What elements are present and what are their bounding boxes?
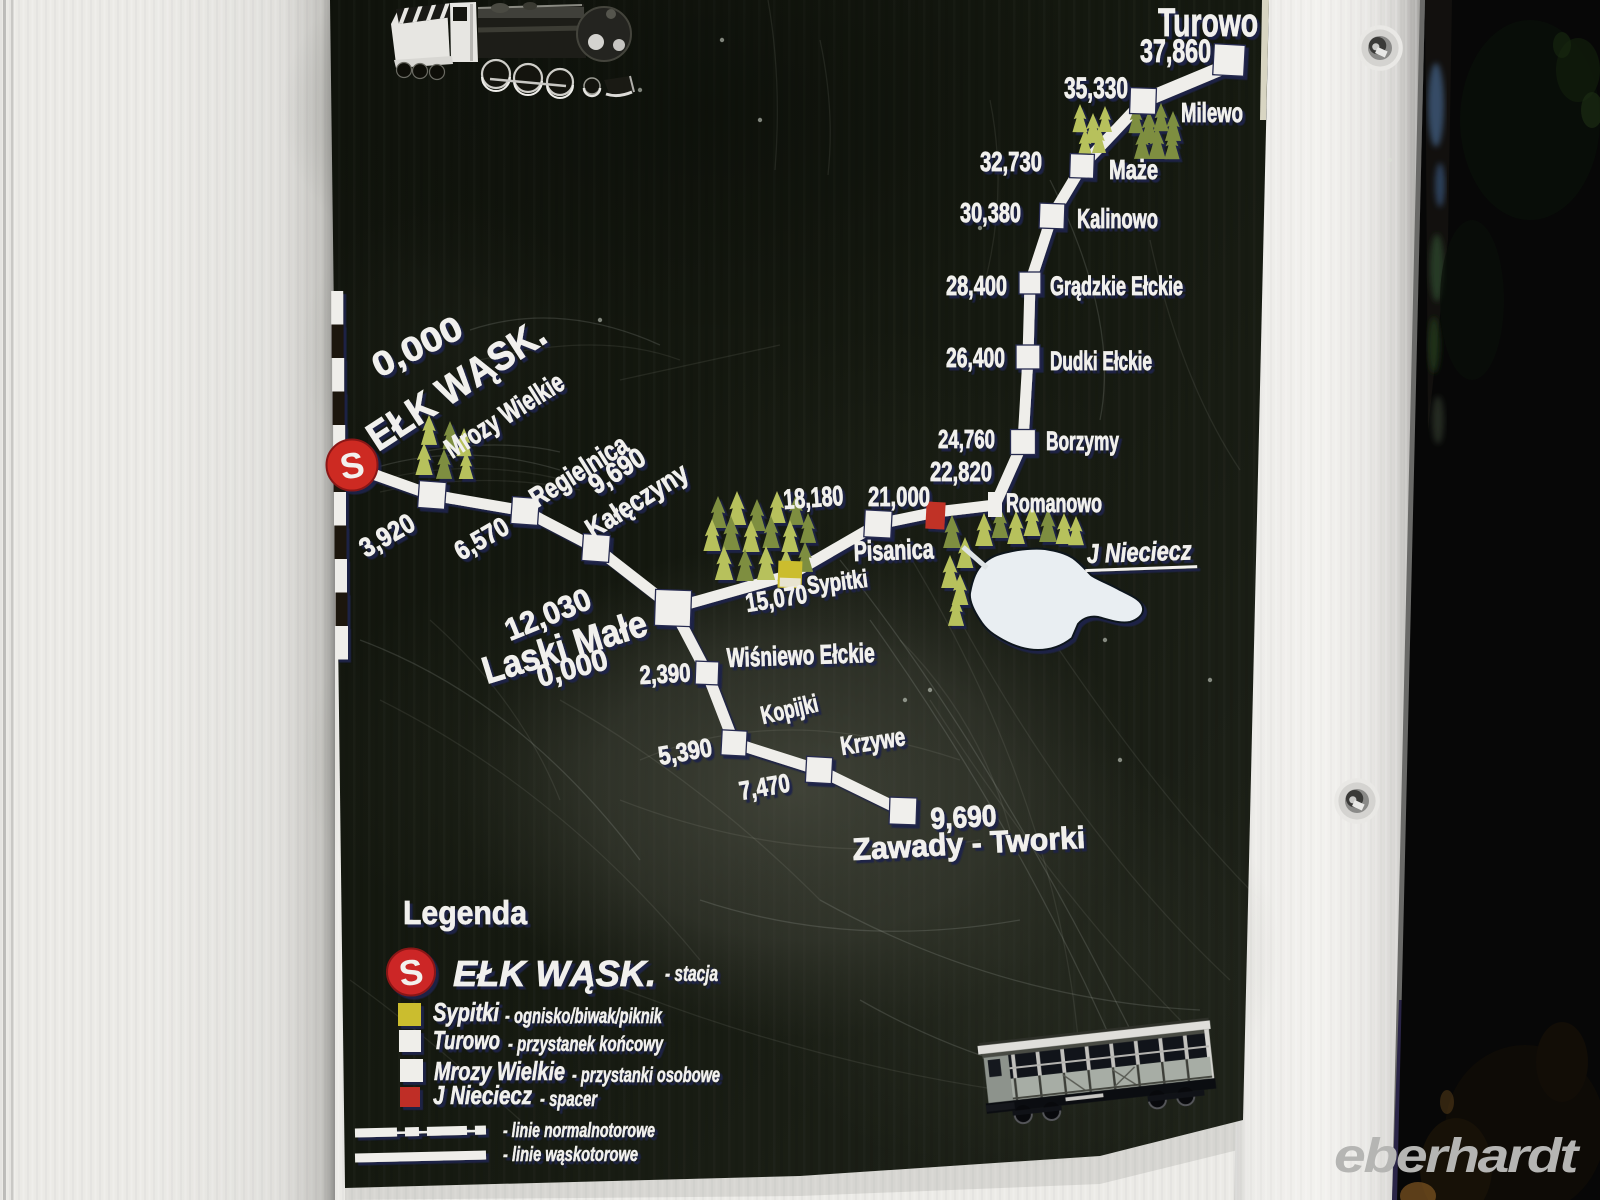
svg-text:21,000: 21,000: [868, 481, 930, 512]
svg-text:- ognisko/biwak/piknik: - ognisko/biwak/piknik: [505, 1005, 663, 1028]
svg-text:30,380: 30,380: [960, 197, 1021, 228]
svg-text:- przystanki osobowe: - przystanki osobowe: [572, 1064, 720, 1087]
svg-text:- spacer: - spacer: [540, 1088, 598, 1111]
svg-text:Kalinowo: Kalinowo: [1077, 203, 1158, 234]
svg-text:J Nieciecz: J Nieciecz: [433, 1080, 532, 1110]
svg-text:- przystanek końcowy: - przystanek końcowy: [508, 1033, 664, 1056]
svg-text:Dudki Ełckie: Dudki Ełckie: [1050, 346, 1152, 376]
svg-text:Romanowo: Romanowo: [1006, 488, 1102, 518]
svg-text:J Nieciecz: J Nieciecz: [1086, 535, 1192, 569]
svg-text:Turowo: Turowo: [433, 1025, 500, 1055]
svg-text:2,390: 2,390: [639, 657, 692, 690]
svg-text:Wiśniewo Ełckie: Wiśniewo Ełckie: [726, 638, 875, 673]
svg-text:26,400: 26,400: [946, 342, 1005, 373]
svg-text:Sypitki: Sypitki: [433, 997, 500, 1027]
svg-text:24,760: 24,760: [938, 424, 995, 454]
svg-text:Maże: Maże: [1109, 154, 1158, 185]
svg-text:37,860: 37,860: [1140, 33, 1211, 69]
svg-text:28,400: 28,400: [946, 270, 1007, 301]
svg-text:- stacja: - stacja: [665, 961, 718, 986]
svg-text:Legenda: Legenda: [403, 894, 528, 931]
svg-text:Borzymy: Borzymy: [1046, 426, 1119, 456]
svg-text:Pisanica: Pisanica: [853, 533, 934, 567]
svg-text:- linie normalnotorowe: - linie normalnotorowe: [503, 1120, 655, 1142]
svg-text:- linie wąskotorowe: - linie wąskotorowe: [503, 1144, 638, 1166]
svg-text:EŁK WĄSK.: EŁK WĄSK.: [453, 953, 656, 994]
svg-text:35,330: 35,330: [1064, 72, 1128, 105]
svg-text:22,820: 22,820: [930, 456, 992, 487]
svg-text:18,180: 18,180: [782, 480, 844, 515]
svg-text:Milewo: Milewo: [1181, 97, 1243, 128]
svg-text:Grądzkie Ełckie: Grądzkie Ełckie: [1050, 271, 1183, 301]
svg-text:eberhardt: eberhardt: [1334, 1130, 1581, 1183]
svg-text:32,730: 32,730: [980, 146, 1042, 177]
